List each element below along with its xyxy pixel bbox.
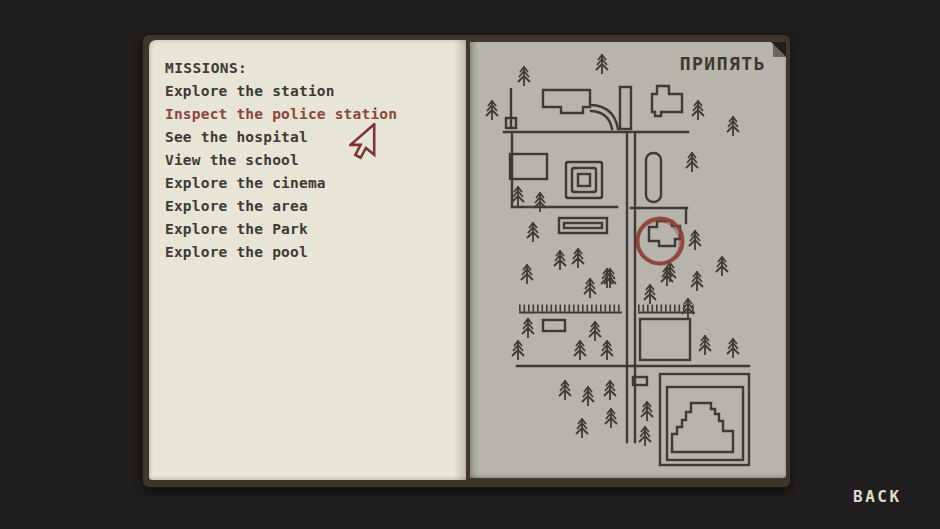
missions-list: MISSIONS: Explore the station Inspect th… [165, 57, 397, 264]
map-title: ПРИПЯТЬ [680, 53, 766, 74]
map-building-pool [672, 403, 733, 452]
map-building-school-inner [578, 174, 590, 186]
mission-item-explore-station[interactable]: Explore the station [165, 80, 397, 103]
map-building-bar-outer [559, 218, 607, 233]
mission-item-explore-area[interactable]: Explore the area [165, 195, 397, 218]
map-railroad [519, 308, 695, 313]
mission-item-explore-pool[interactable]: Explore the pool [165, 241, 397, 264]
map-building-bar-inner [564, 223, 602, 228]
map-roads [504, 105, 749, 442]
back-button[interactable]: BACK [853, 487, 902, 506]
pripyat-map [470, 42, 786, 478]
map-building-school-mid [572, 168, 596, 192]
journal-book: MISSIONS: Explore the station Inspect th… [143, 35, 790, 487]
cursor-pointer [349, 123, 376, 160]
map-building-cinema [640, 319, 690, 360]
map-building-tower [620, 87, 631, 129]
map-building-block [510, 154, 547, 179]
missions-page: MISSIONS: Explore the station Inspect th… [149, 40, 466, 480]
map-building-station [543, 90, 590, 113]
map-stadium-inner [667, 387, 743, 460]
map-page: ПРИПЯТЬ [470, 42, 786, 478]
map-building-north-east [652, 86, 682, 116]
mission-item-explore-park[interactable]: Explore the Park [165, 218, 397, 241]
mission-item-explore-cinema[interactable]: Explore the cinema [165, 172, 397, 195]
missions-heading: MISSIONS: [165, 57, 397, 80]
map-building-depot [543, 320, 565, 331]
page-fold-corner [771, 42, 786, 57]
map-building-hospital [646, 153, 661, 202]
